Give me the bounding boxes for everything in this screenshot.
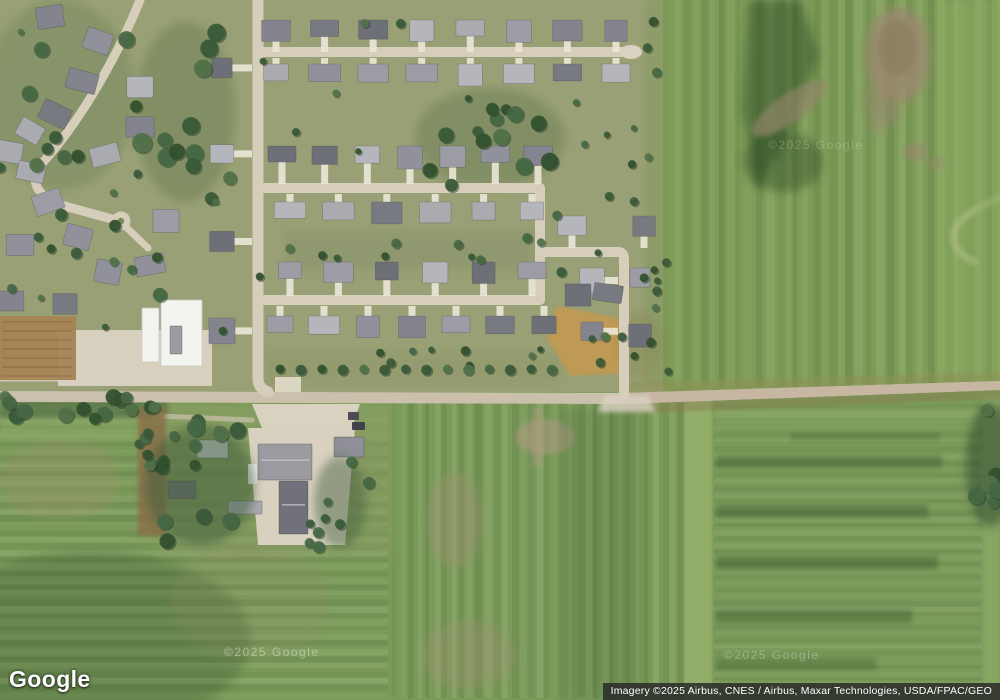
satellite-imagery (0, 0, 1000, 700)
map-viewport[interactable]: ©2025 Google ©2025 Google ©2025 Google G… (0, 0, 1000, 700)
google-logo[interactable]: Google (9, 666, 91, 693)
attribution-text: Imagery ©2025 Airbus, CNES / Airbus, Max… (603, 683, 1000, 700)
